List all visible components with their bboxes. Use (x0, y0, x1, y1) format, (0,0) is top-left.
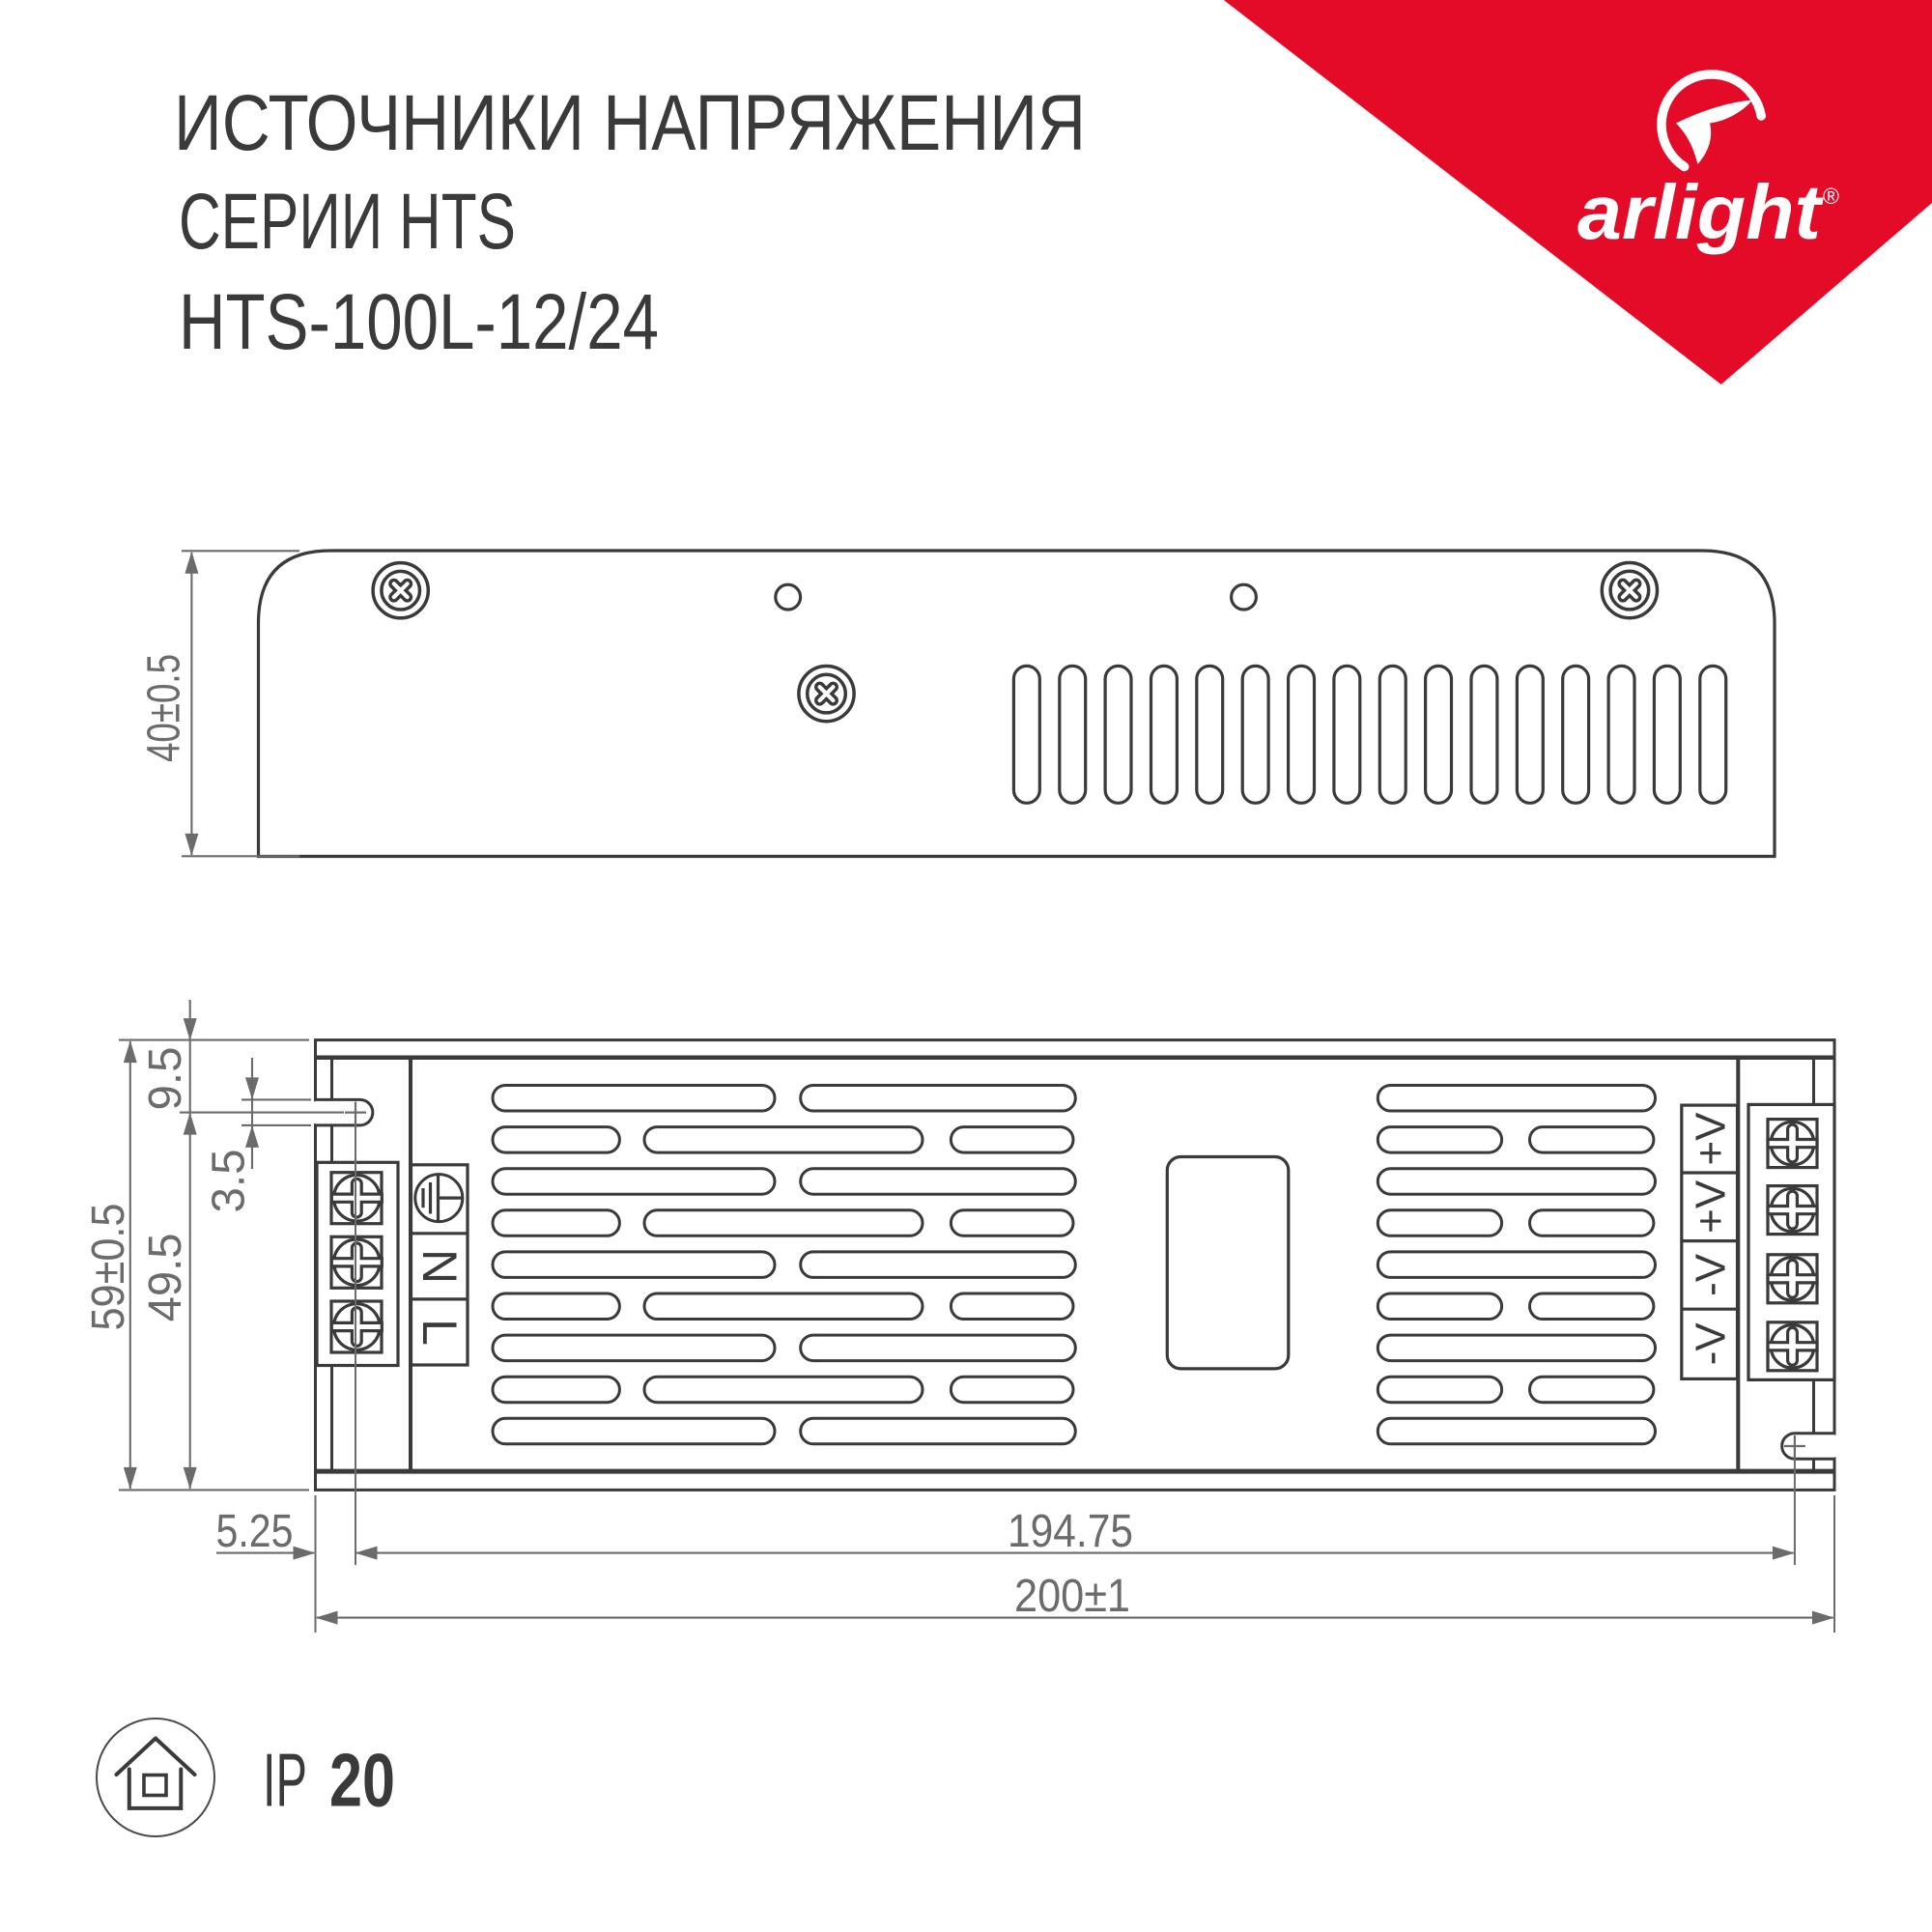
svg-text:194.75: 194.75 (1008, 1506, 1133, 1557)
svg-text:N: N (412, 1249, 467, 1284)
svg-text:59±0.5: 59±0.5 (83, 1204, 134, 1331)
svg-text:5.25: 5.25 (216, 1506, 294, 1557)
svg-text:49.5: 49.5 (140, 1233, 191, 1321)
svg-text:3.5: 3.5 (204, 1150, 255, 1213)
svg-text:-V: -V (1688, 1322, 1735, 1366)
svg-text:IP20: IP20 (263, 1738, 395, 1823)
svg-text:-V: -V (1688, 1253, 1735, 1296)
svg-text:arlight: arlight (1577, 169, 1824, 255)
svg-text:+V: +V (1688, 1112, 1735, 1166)
svg-text:200±1: 200±1 (1014, 1571, 1130, 1622)
svg-text:СЕРИИ HTS: СЕРИИ HTS (179, 178, 516, 266)
svg-text:9.5: 9.5 (140, 1047, 191, 1111)
svg-text:®: ® (1823, 184, 1839, 209)
svg-text:+V: +V (1688, 1179, 1735, 1234)
svg-text:ИСТОЧНИКИ НАПРЯЖЕНИЯ: ИСТОЧНИКИ НАПРЯЖЕНИЯ (174, 79, 1086, 167)
svg-text:L: L (412, 1319, 467, 1346)
svg-text:40±0.5: 40±0.5 (139, 654, 190, 762)
svg-text:HTS-100L-12/24: HTS-100L-12/24 (179, 278, 659, 366)
